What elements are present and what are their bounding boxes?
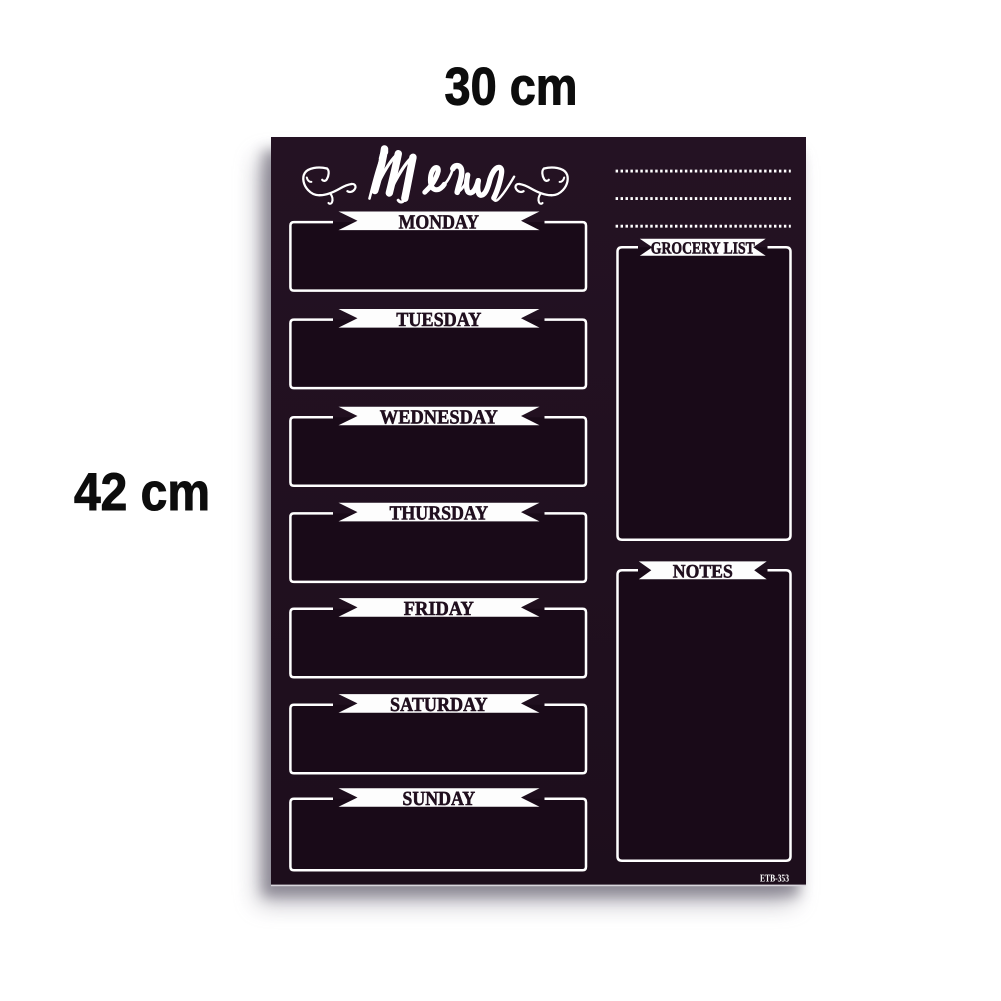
svg-text:NOTES: NOTES <box>673 561 733 582</box>
svg-text:SUNDAY: SUNDAY <box>402 788 475 810</box>
svg-text:MONDAY: MONDAY <box>399 211 480 233</box>
svg-text:THURSDAY: THURSDAY <box>390 503 489 525</box>
svg-text:ETB-353: ETB-353 <box>760 873 789 884</box>
svg-text:42 cm: 42 cm <box>74 463 210 522</box>
svg-text:FRIDAY: FRIDAY <box>404 598 475 620</box>
svg-text:TUESDAY: TUESDAY <box>396 309 481 331</box>
svg-text:WEDNESDAY: WEDNESDAY <box>380 407 499 429</box>
svg-text:30 cm: 30 cm <box>445 58 578 117</box>
svg-text:SATURDAY: SATURDAY <box>390 694 488 716</box>
svg-text:GROCERY LIST: GROCERY LIST <box>651 239 756 258</box>
